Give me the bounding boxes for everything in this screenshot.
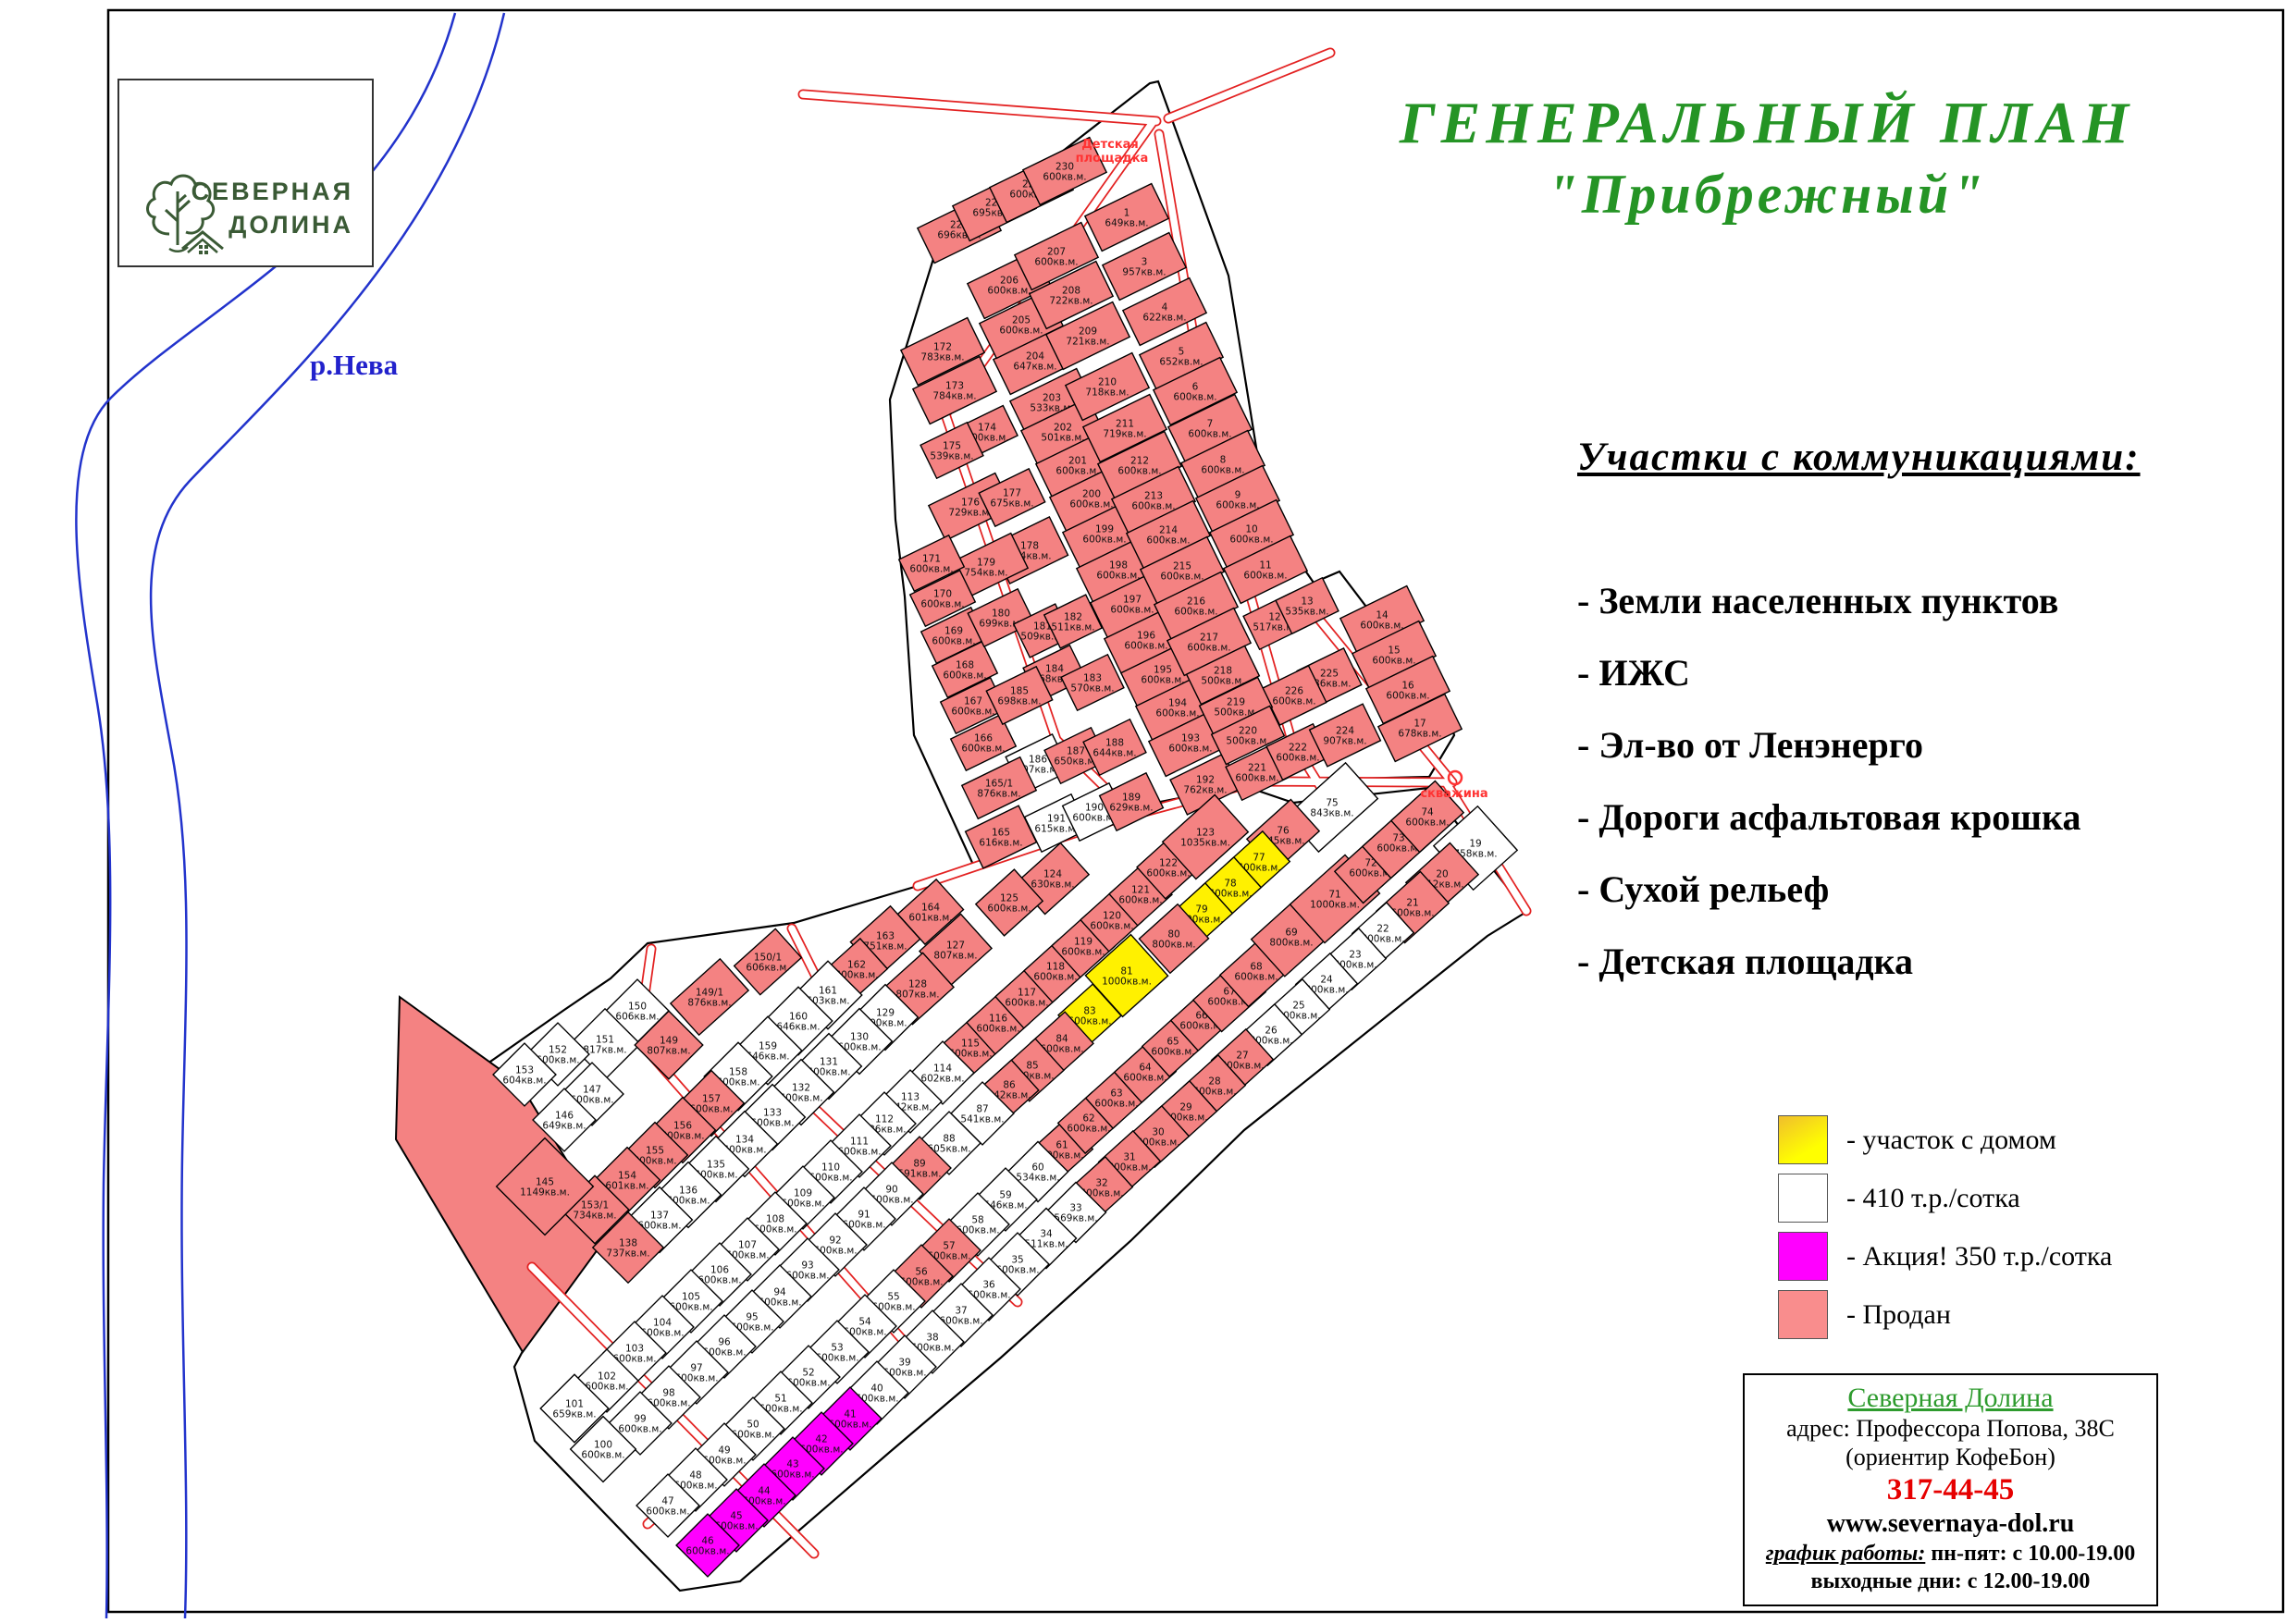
svg-text:скважина: скважина xyxy=(1420,787,1487,801)
title-line1: ГЕНЕРАЛЬНЫЙ ПЛАН xyxy=(1286,89,2248,157)
contact-schedule-weekend: выходные дни: с 12.00-19.00 xyxy=(1745,1568,2156,1595)
feature-item: - Эл-во от Ленэнерго xyxy=(1577,709,2290,781)
contact-company: Северная Долина xyxy=(1745,1383,2156,1414)
contact-address: адрес: Профессора Попова, 38С xyxy=(1745,1414,2156,1443)
legend-row-free: - 410 т.р./сотка xyxy=(1778,1169,2112,1227)
schedule-label: график работы: xyxy=(1766,1542,1926,1566)
contact-website: www.severnaya-dol.ru xyxy=(1745,1508,2156,1540)
general-plan-page: { "page": { "title_line1": "ГЕНЕРАЛЬНЫЙ … xyxy=(0,0,2296,1623)
page-title: ГЕНЕРАЛЬНЫЙ ПЛАН "Прибрежный" xyxy=(1286,89,2248,227)
feature-item: - Земли населенных пунктов xyxy=(1577,565,2290,637)
map-legend: - участок с домом - 410 т.р./сотка - Акц… xyxy=(1778,1111,2112,1344)
legend-swatch-sold xyxy=(1778,1290,1828,1339)
contact-box: Северная Долина адрес: Профессора Попова… xyxy=(1743,1373,2158,1606)
feature-item: - Детская площадка xyxy=(1577,926,2290,998)
river-label: р.Нева xyxy=(310,349,399,381)
legend-swatch-promo xyxy=(1778,1232,1828,1281)
logo-line2: ДОЛИНА xyxy=(191,208,353,241)
features-heading: Участки с коммуникациями: xyxy=(1577,435,2290,480)
logo-line1: СЕВЕРНАЯ xyxy=(191,175,353,208)
contact-schedule-weekdays: график работы: пн-пят: с 10.00-19.00 xyxy=(1745,1540,2156,1568)
feature-item: - Дороги асфальтовая крошка xyxy=(1577,781,2290,854)
svg-text:Детская: Детская xyxy=(1081,138,1139,152)
plots-layer: 227696кв.м.228695кв.м.229600кв.м.230600к… xyxy=(493,138,1517,1577)
contact-landmark: (ориентир КофеБон) xyxy=(1745,1443,2156,1471)
legend-row-sold: - Продан xyxy=(1778,1285,2112,1344)
contact-phone: 317-44-45 xyxy=(1745,1471,2156,1508)
playground-label: Детская площадка xyxy=(1076,138,1149,166)
feature-item: - Сухой рельеф xyxy=(1577,854,2290,926)
legend-label: - 410 т.р./сотка xyxy=(1846,1183,2020,1214)
legend-swatch-free xyxy=(1778,1174,1828,1223)
legend-label: - участок с домом xyxy=(1846,1125,2056,1156)
svg-text:площадка: площадка xyxy=(1076,152,1149,166)
legend-swatch-house xyxy=(1778,1115,1828,1164)
legend-row-house: - участок с домом xyxy=(1778,1111,2112,1169)
legend-label: - Продан xyxy=(1846,1299,1951,1331)
features-panel: Участки с коммуникациями: - Земли населе… xyxy=(1577,435,2290,998)
title-line2: "Прибрежный" xyxy=(1286,163,2248,227)
company-logo: СЕВЕРНАЯ ДОЛИНА xyxy=(117,79,374,267)
legend-row-promo: - Акция! 350 т.р./сотка xyxy=(1778,1227,2112,1285)
feature-item: - ИЖС xyxy=(1577,637,2290,709)
legend-label: - Акция! 350 т.р./сотка xyxy=(1846,1241,2112,1273)
